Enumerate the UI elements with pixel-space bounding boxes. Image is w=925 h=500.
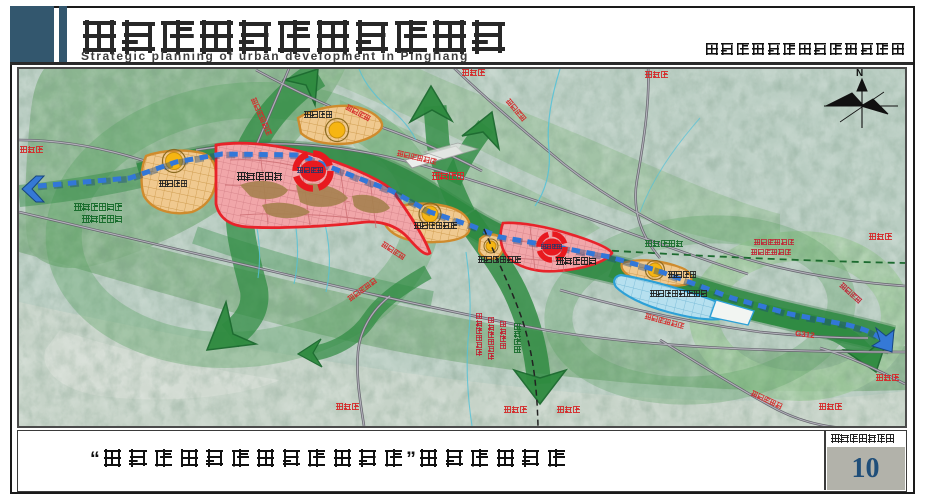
svg-text:N: N (856, 68, 863, 79)
